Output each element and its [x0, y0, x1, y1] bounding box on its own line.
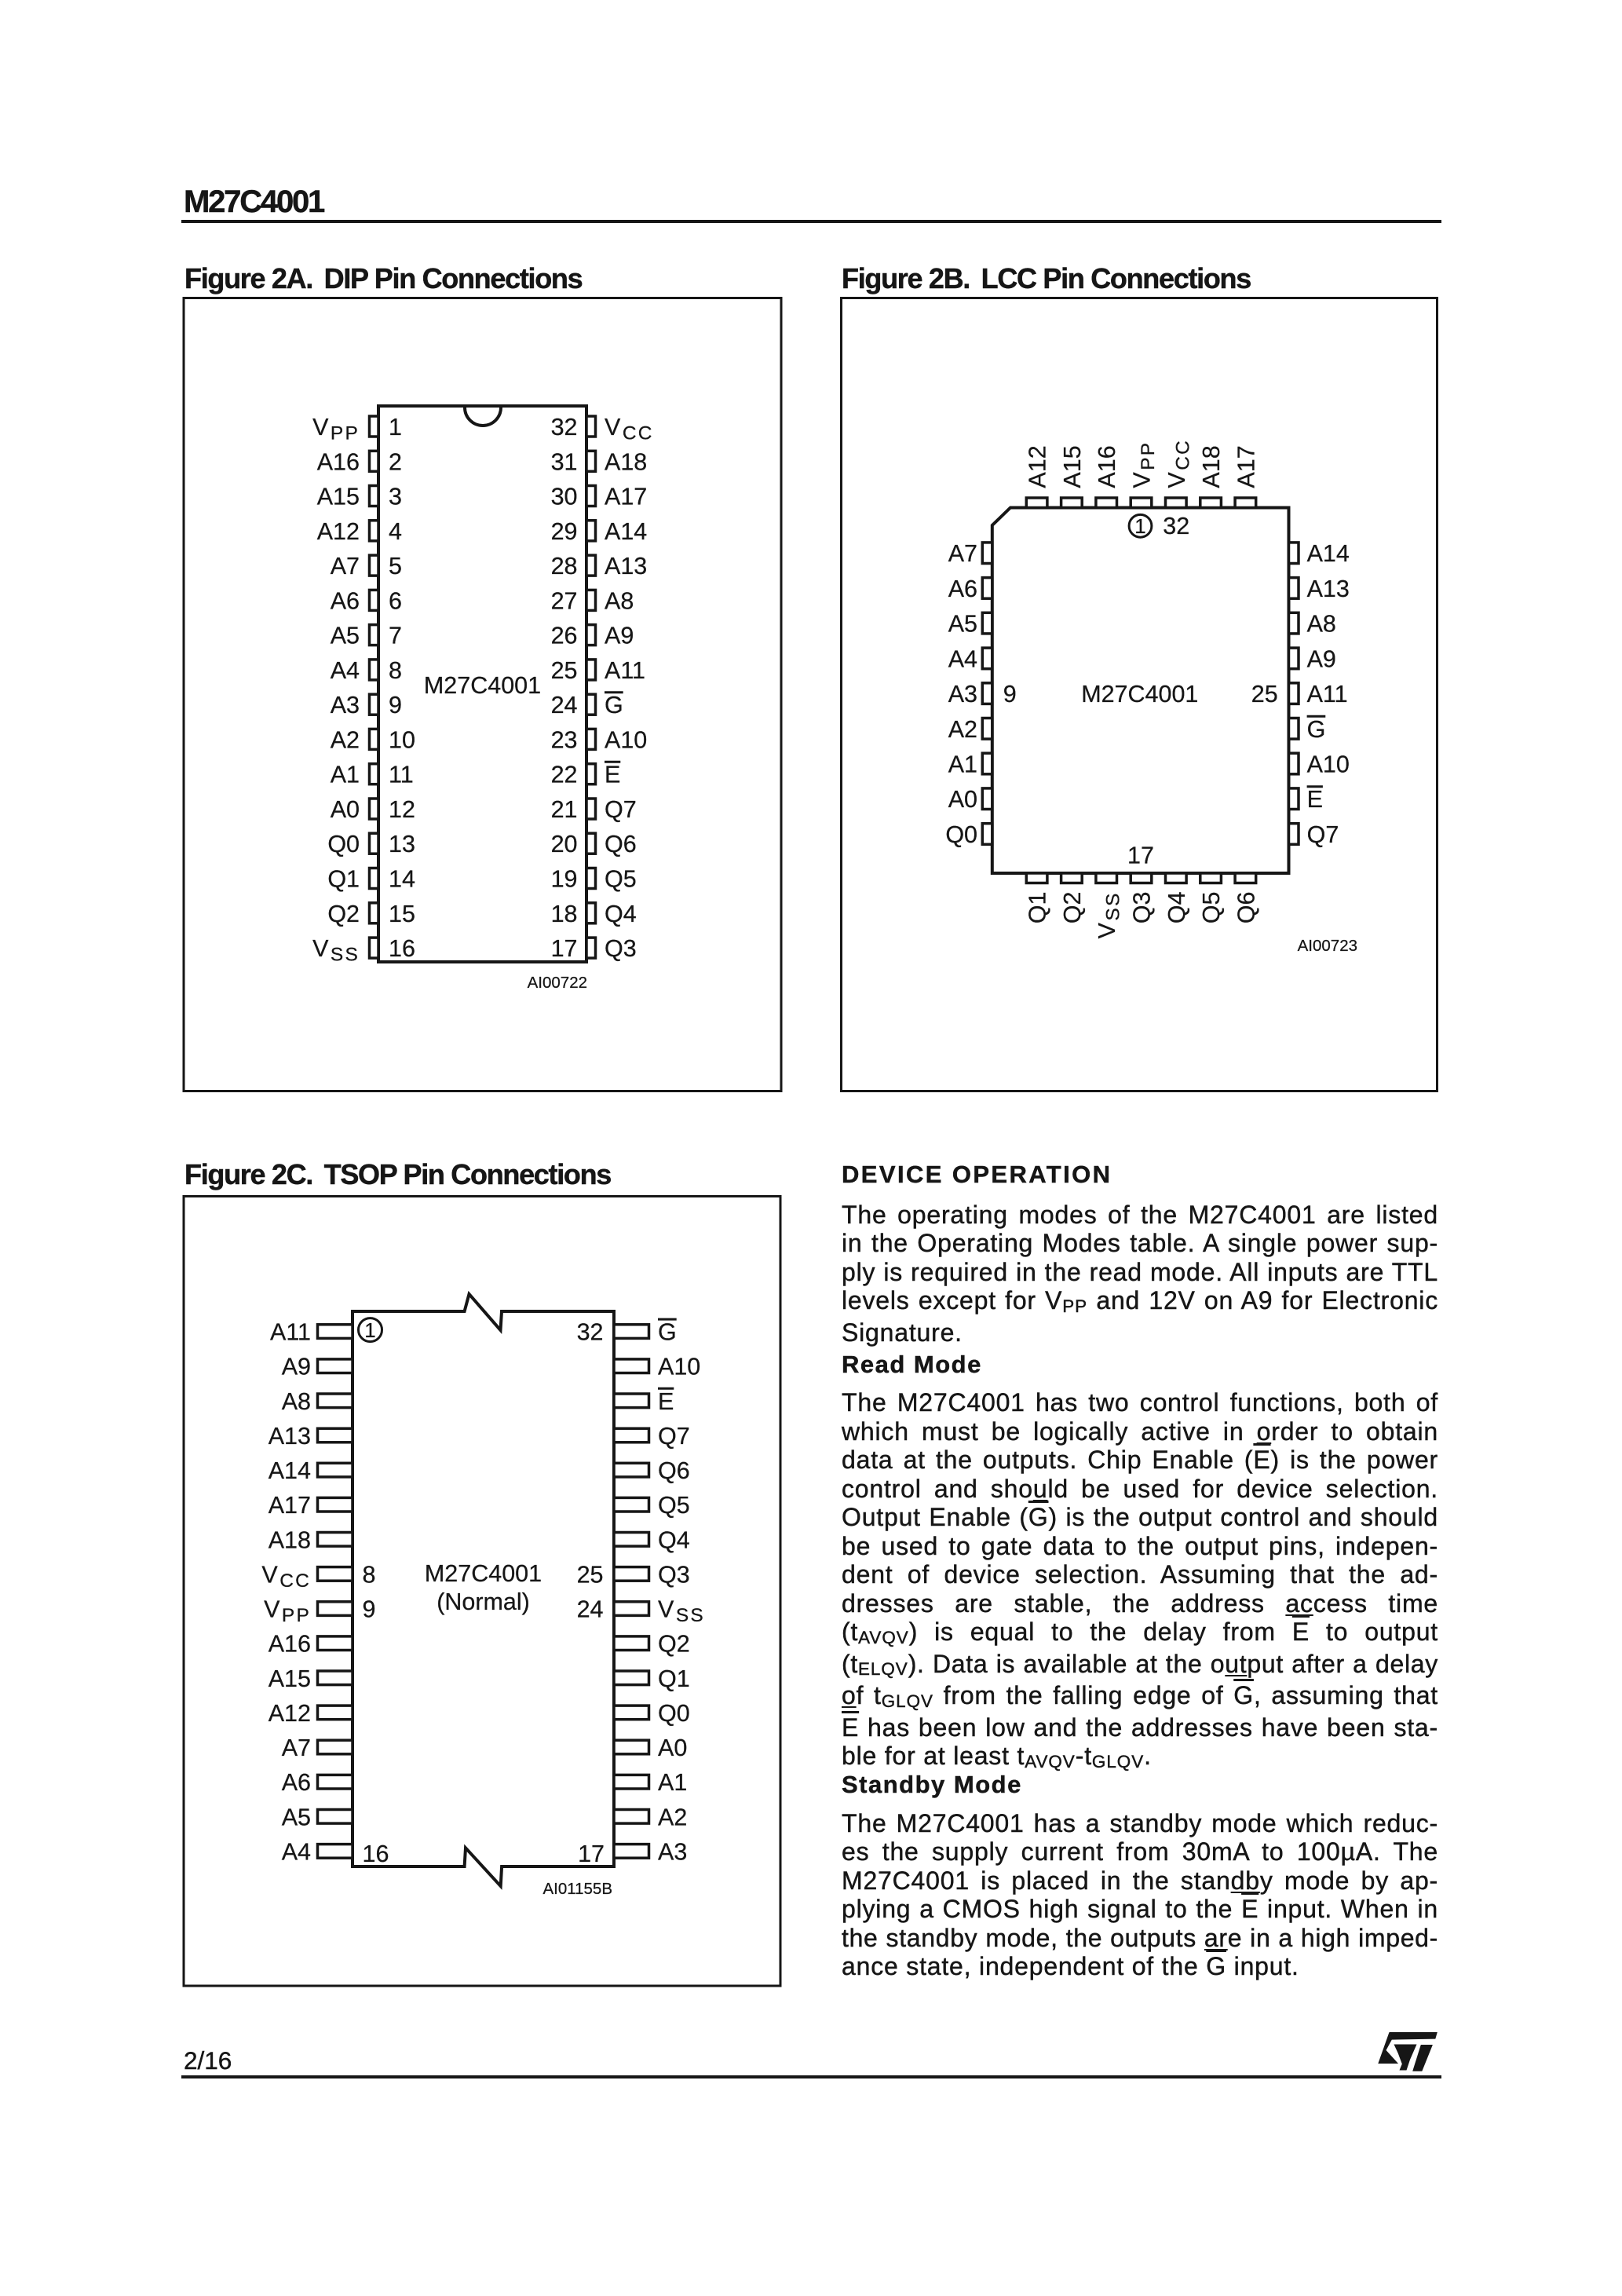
- svg-text:A11: A11: [1307, 681, 1348, 707]
- svg-text:1: 1: [364, 1318, 375, 1342]
- svg-text:A2: A2: [948, 716, 977, 743]
- svg-text:17: 17: [1127, 842, 1154, 868]
- svg-text:A2: A2: [331, 726, 360, 753]
- svg-text:9: 9: [1003, 681, 1017, 707]
- svg-text:A3: A3: [658, 1838, 687, 1865]
- svg-text:VSS: VSS: [658, 1596, 705, 1627]
- svg-text:A1: A1: [658, 1769, 687, 1796]
- svg-text:Q4: Q4: [658, 1526, 690, 1553]
- svg-text:VCC: VCC: [605, 414, 654, 444]
- svg-text:Q3: Q3: [1129, 892, 1156, 924]
- svg-text:Q0: Q0: [327, 831, 360, 857]
- svg-text:Q3: Q3: [605, 935, 637, 962]
- svg-text:A3: A3: [331, 692, 360, 718]
- svg-text:Q4: Q4: [1164, 891, 1190, 923]
- svg-text:A14: A14: [1307, 540, 1350, 567]
- svg-text:Q6: Q6: [1233, 892, 1259, 924]
- svg-text:A1: A1: [948, 751, 977, 778]
- svg-text:A12: A12: [1025, 445, 1051, 488]
- svg-text:A1: A1: [331, 762, 360, 788]
- svg-text:A17: A17: [605, 484, 647, 510]
- svg-text:A0: A0: [948, 786, 977, 813]
- svg-text:11: 11: [389, 762, 414, 788]
- svg-text:A12: A12: [317, 518, 360, 545]
- svg-text:A0: A0: [331, 796, 360, 823]
- svg-text:Q6: Q6: [658, 1457, 690, 1484]
- svg-text:20: 20: [551, 831, 578, 857]
- svg-text:Q0: Q0: [658, 1700, 690, 1727]
- svg-text:Q7: Q7: [1307, 821, 1339, 848]
- svg-text:Q1: Q1: [1025, 892, 1051, 924]
- svg-text:25: 25: [1251, 681, 1278, 707]
- svg-text:A15: A15: [1059, 445, 1086, 488]
- svg-text:VCC: VCC: [261, 1561, 311, 1592]
- svg-text:17: 17: [551, 935, 578, 962]
- svg-text:24: 24: [577, 1596, 604, 1623]
- svg-text:E: E: [658, 1388, 674, 1415]
- svg-text:7: 7: [389, 623, 402, 649]
- svg-text:M27C4001: M27C4001: [425, 1560, 542, 1587]
- svg-text:32: 32: [1163, 513, 1189, 539]
- svg-text:VPP: VPP: [1129, 441, 1160, 488]
- svg-text:VPP: VPP: [312, 414, 360, 444]
- svg-text:5: 5: [389, 553, 402, 579]
- svg-text:A6: A6: [948, 576, 977, 602]
- svg-text:Q7: Q7: [605, 796, 637, 823]
- svg-text:A7: A7: [331, 553, 360, 579]
- svg-text:15: 15: [389, 901, 415, 927]
- svg-text:25: 25: [551, 657, 578, 684]
- svg-text:A18: A18: [605, 448, 647, 475]
- svg-text:Q5: Q5: [605, 866, 637, 893]
- svg-text:A8: A8: [605, 587, 634, 614]
- svg-text:A18: A18: [269, 1526, 311, 1553]
- svg-text:M27C4001: M27C4001: [424, 672, 541, 699]
- svg-text:AI00722: AI00722: [528, 974, 587, 992]
- svg-text:A10: A10: [1307, 751, 1350, 778]
- svg-text:8: 8: [389, 657, 402, 684]
- svg-text:25: 25: [577, 1561, 604, 1588]
- svg-text:AI00723: AI00723: [1298, 937, 1357, 955]
- svg-text:Q2: Q2: [327, 901, 360, 927]
- svg-text:A0: A0: [658, 1735, 687, 1761]
- svg-text:28: 28: [551, 553, 578, 579]
- svg-text:A9: A9: [1307, 645, 1336, 672]
- svg-text:A13: A13: [269, 1423, 311, 1450]
- svg-text:Q2: Q2: [658, 1631, 690, 1658]
- svg-text:18: 18: [551, 901, 578, 927]
- svg-text:A16: A16: [1094, 445, 1120, 488]
- svg-text:10: 10: [389, 726, 415, 753]
- svg-text:8: 8: [363, 1561, 376, 1588]
- svg-text:29: 29: [551, 518, 578, 545]
- svg-text:A4: A4: [282, 1838, 311, 1865]
- svg-text:30: 30: [551, 484, 578, 510]
- svg-text:22: 22: [551, 762, 578, 788]
- svg-text:A3: A3: [948, 681, 977, 707]
- svg-text:Q5: Q5: [658, 1492, 690, 1519]
- svg-text:16: 16: [363, 1841, 389, 1867]
- svg-text:E: E: [1307, 786, 1323, 813]
- svg-text:32: 32: [577, 1319, 604, 1346]
- svg-text:G: G: [658, 1319, 677, 1346]
- svg-text:A10: A10: [658, 1354, 700, 1380]
- svg-text:19: 19: [551, 866, 578, 893]
- svg-text:32: 32: [551, 414, 578, 441]
- svg-text:A5: A5: [948, 611, 977, 638]
- svg-text:1: 1: [389, 414, 402, 441]
- svg-text:9: 9: [389, 692, 402, 718]
- svg-text:4: 4: [389, 518, 402, 545]
- svg-text:A11: A11: [270, 1319, 311, 1346]
- svg-text:VSS: VSS: [1094, 892, 1124, 939]
- svg-text:Q2: Q2: [1059, 892, 1086, 924]
- svg-text:E: E: [605, 762, 620, 788]
- svg-text:6: 6: [389, 587, 402, 614]
- svg-text:A9: A9: [605, 623, 634, 649]
- svg-text:A18: A18: [1198, 445, 1225, 488]
- svg-text:23: 23: [551, 726, 578, 753]
- svg-text:Q5: Q5: [1198, 892, 1225, 924]
- svg-text:A4: A4: [331, 657, 360, 684]
- svg-text:A13: A13: [605, 553, 647, 579]
- svg-text:A16: A16: [317, 448, 360, 475]
- svg-text:VPP: VPP: [264, 1596, 311, 1627]
- svg-text:A5: A5: [331, 623, 360, 649]
- svg-text:2: 2: [389, 448, 402, 475]
- svg-text:A8: A8: [282, 1388, 311, 1415]
- svg-text:Q6: Q6: [605, 831, 637, 857]
- svg-text:A8: A8: [1307, 611, 1336, 638]
- svg-text:A13: A13: [1307, 576, 1350, 602]
- svg-text:VSS: VSS: [312, 935, 360, 966]
- svg-text:9: 9: [363, 1596, 376, 1623]
- svg-text:A12: A12: [269, 1700, 311, 1727]
- svg-text:A14: A14: [269, 1457, 311, 1484]
- svg-text:A10: A10: [605, 726, 647, 753]
- svg-text:Q1: Q1: [327, 866, 360, 893]
- svg-text:VCC: VCC: [1164, 439, 1194, 488]
- svg-text:21: 21: [551, 796, 578, 823]
- svg-text:A15: A15: [269, 1665, 311, 1692]
- svg-text:Q4: Q4: [605, 901, 637, 927]
- svg-text:(Normal): (Normal): [437, 1589, 530, 1615]
- svg-text:A9: A9: [282, 1354, 311, 1380]
- svg-text:14: 14: [389, 866, 415, 893]
- svg-text:Q3: Q3: [658, 1561, 690, 1588]
- svg-text:3: 3: [389, 484, 402, 510]
- svg-text:Q1: Q1: [658, 1665, 690, 1692]
- svg-text:12: 12: [389, 796, 415, 823]
- svg-text:26: 26: [551, 623, 578, 649]
- svg-text:A2: A2: [658, 1804, 687, 1830]
- svg-text:A14: A14: [605, 518, 647, 545]
- svg-text:G: G: [1307, 716, 1326, 743]
- svg-text:13: 13: [389, 831, 415, 857]
- svg-text:A6: A6: [282, 1769, 311, 1796]
- svg-text:27: 27: [551, 587, 578, 614]
- svg-text:24: 24: [551, 692, 578, 718]
- svg-text:1: 1: [1134, 514, 1145, 538]
- svg-text:A15: A15: [317, 484, 360, 510]
- svg-text:M27C4001: M27C4001: [1081, 681, 1198, 707]
- svg-text:Q0: Q0: [945, 821, 977, 848]
- svg-text:A5: A5: [282, 1804, 311, 1830]
- svg-text:A16: A16: [269, 1631, 311, 1658]
- svg-text:A11: A11: [605, 657, 645, 684]
- svg-text:16: 16: [389, 935, 415, 962]
- svg-text:AI01155B: AI01155B: [542, 1880, 612, 1898]
- svg-text:31: 31: [551, 448, 578, 475]
- svg-text:A17: A17: [1233, 445, 1259, 488]
- svg-text:G: G: [605, 692, 623, 718]
- svg-text:Q7: Q7: [658, 1423, 690, 1450]
- svg-text:A4: A4: [948, 645, 977, 672]
- svg-text:A7: A7: [282, 1735, 311, 1761]
- svg-text:A17: A17: [269, 1492, 311, 1519]
- svg-text:17: 17: [578, 1841, 605, 1867]
- svg-text:A7: A7: [948, 540, 977, 567]
- svg-text:A6: A6: [331, 587, 360, 614]
